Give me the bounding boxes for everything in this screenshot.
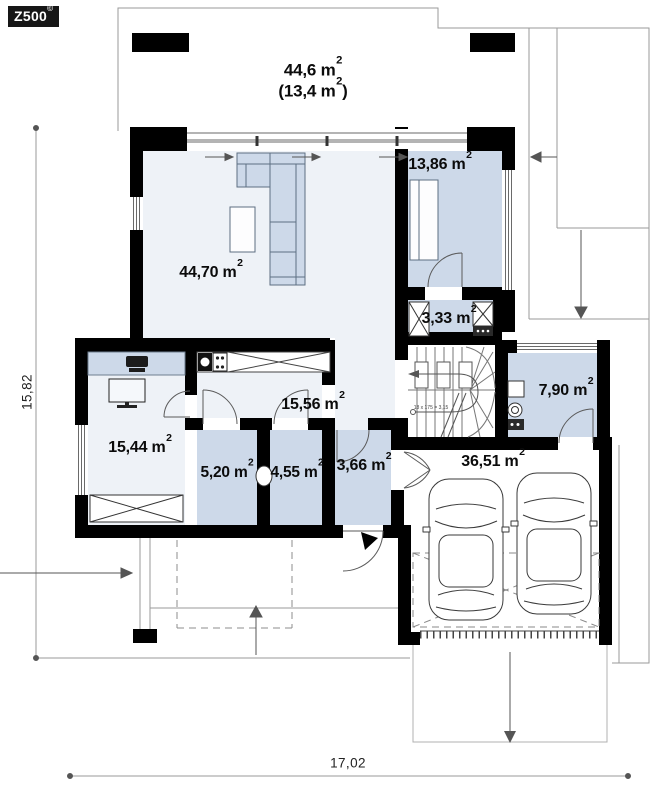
kitchen-counter (197, 352, 330, 372)
bedroom-wardrobe (410, 180, 438, 260)
sofa-side-section (270, 153, 305, 285)
wall-rooms-top-a (185, 418, 203, 430)
wall-vestibule-garage-b (391, 490, 404, 525)
wall-bottom-b (335, 525, 343, 538)
arrow-left-head (121, 568, 132, 578)
label-terrace-area: 44,6 m2 (284, 60, 342, 81)
terrace-pier-right (470, 33, 515, 52)
car-mirror-right (502, 527, 509, 532)
porch-pier (133, 629, 157, 643)
wardrobe-outline (410, 180, 438, 260)
dim-dot-bottom-2 (626, 774, 631, 779)
wall-bedroom-right-b (502, 290, 515, 300)
wall-dressing-right (493, 300, 515, 332)
wall-bath-top-left (495, 340, 517, 353)
label-terrace-area-secondary: (13,4 m2) (278, 81, 347, 102)
wall-bath-right (597, 340, 610, 450)
wall-bedroom-left (395, 127, 408, 360)
printer-icon (126, 356, 148, 367)
label-stairs-note: 18 x 175 = 3,15 (414, 405, 449, 411)
water-heater (508, 403, 522, 417)
terrace-pier-left (132, 33, 189, 52)
terrace-piers (132, 33, 515, 52)
label-office: 15,44 m2 (108, 437, 171, 457)
label-hall: 15,56 m2 (281, 394, 344, 414)
label-living-room: 44,70 m2 (179, 262, 242, 282)
monitor-icon (109, 379, 145, 402)
wall-office-right (185, 352, 197, 395)
dim-dot-top-left (34, 126, 39, 131)
window-bedroom (502, 170, 515, 290)
wall-left-a (130, 151, 143, 197)
window-bathroom (517, 340, 597, 353)
wall-stairs-right (495, 340, 508, 450)
wall-garage-right (599, 437, 612, 645)
stair-opening-box (437, 362, 450, 388)
stove-burner (221, 365, 224, 368)
washbasin (508, 381, 524, 397)
dim-dot-bottom-1 (68, 774, 73, 779)
stove-burner (216, 365, 219, 368)
arrow-down-head (575, 307, 587, 318)
shelf-dot (482, 330, 485, 333)
appliance-dot (511, 423, 514, 426)
car-mirror-right (590, 521, 597, 526)
roof-overhang-dashed (177, 540, 292, 628)
vestibule-floor (335, 430, 391, 525)
logo-text: Z500 (14, 8, 47, 24)
label-bathroom: 7,90 m2 (539, 380, 594, 400)
wall-bottom-a (75, 525, 335, 538)
window-office (75, 425, 88, 495)
shelf-dot (487, 330, 490, 333)
floor-plan: Z500© 44,6 m2 (13,4 m2) 44,70 m2 13,86 m… (0, 0, 655, 804)
stove-burner (221, 356, 224, 359)
dim-dot-bottom-left (34, 656, 39, 661)
wall-office-left-a (75, 352, 88, 425)
wall-garage-top (398, 437, 495, 450)
stairs-floor (408, 345, 495, 437)
arrow-right-head (531, 152, 541, 162)
window-living-left (130, 197, 143, 230)
appliance-dot (517, 423, 520, 426)
label-wc: 5,20 m2 (200, 463, 254, 482)
entry-arrow (361, 532, 378, 550)
car-2 (511, 473, 597, 614)
passage-floor (335, 338, 395, 430)
logo-copyright: © (47, 4, 53, 13)
wall-garage-bottom-b (599, 632, 612, 645)
wall-rooms-top-d (368, 418, 398, 430)
wall-top-left-pier (130, 127, 187, 151)
monitor-stand (125, 402, 129, 405)
stove-burner (216, 356, 219, 359)
wall-bedroom-right-a (502, 127, 515, 170)
wall-mid-horizontal (75, 338, 330, 352)
appliance (508, 419, 524, 430)
label-vestibule: 3,66 m2 (337, 455, 392, 475)
printer-tray (129, 368, 145, 372)
label-dressing: 3,33 m2 (422, 308, 477, 328)
driveway (413, 645, 607, 743)
shelf-dot (477, 330, 480, 333)
coffee-table (230, 207, 255, 252)
label-dimension-height: 15,82 (20, 374, 35, 410)
wall-garage-left (398, 525, 411, 645)
car-mirror-left (511, 521, 518, 526)
wall-bath-bottom-a (495, 437, 558, 450)
label-garage: 36,51 m2 (461, 451, 524, 471)
label-bedroom: 13,86 m2 (408, 154, 471, 174)
wall-bedroom-bottom-a (395, 287, 425, 300)
car-body (517, 473, 591, 614)
driveway-arrow-head (504, 731, 516, 743)
wall-rooms-top-c (308, 418, 335, 430)
wall-rooms-top-b (240, 418, 272, 430)
monitor-base (117, 405, 137, 408)
window-terrace (187, 129, 467, 149)
stove (213, 353, 227, 371)
car-mirror-left (423, 527, 430, 532)
label-pantry: 4,55 m2 (270, 463, 324, 482)
wall-garage-bottom-a (398, 632, 420, 645)
z500-logo: Z500© (8, 6, 59, 27)
car-body (429, 479, 503, 620)
sink-bowl (201, 358, 210, 367)
wall-left-b (130, 230, 143, 338)
label-dimension-width: 17,02 (330, 756, 366, 771)
car-1 (423, 479, 509, 620)
